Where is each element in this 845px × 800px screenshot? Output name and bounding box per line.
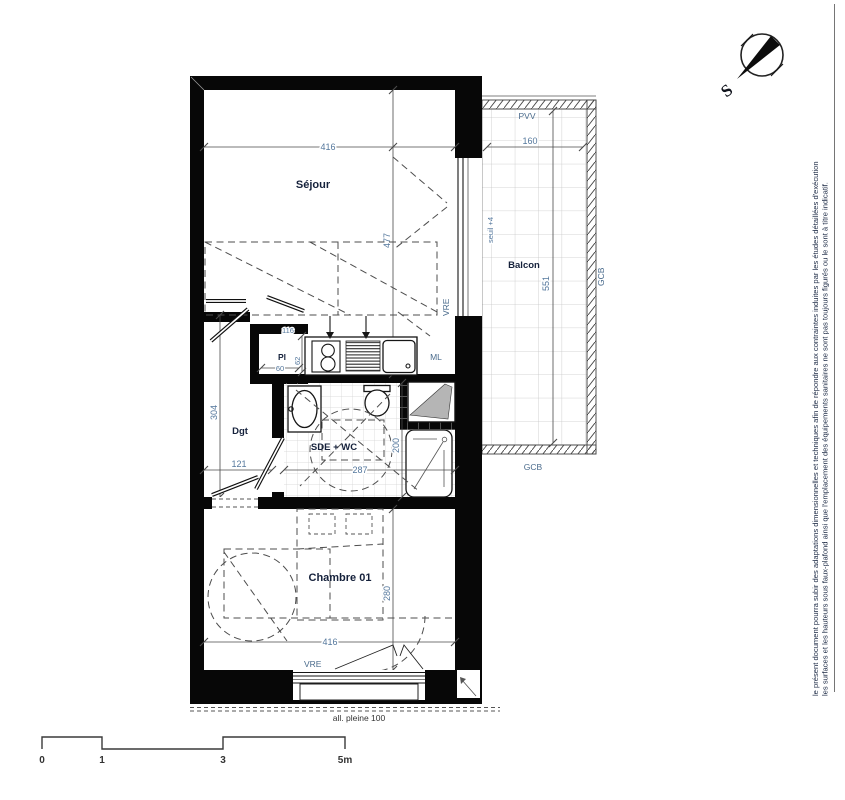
dim-pl-width: 60 (276, 364, 284, 373)
label-gcb-bottom: GCB (524, 462, 543, 472)
disclaimer-block: le présent document pourra subir des ada… (811, 4, 835, 696)
turning-circle-dashed (208, 553, 296, 641)
wardrobe-dashed (224, 549, 455, 641)
balcony-rail-right (587, 100, 596, 454)
disclaimer-line-2: les surfaces et les hauteurs sous faux-p… (821, 182, 830, 696)
scale-label-5m: 5m (338, 755, 353, 766)
kitchen-sink (383, 341, 415, 373)
window-sill-box (300, 684, 418, 700)
dim-sejour-width: 416 (320, 142, 335, 152)
vent-arrows (326, 316, 370, 339)
room-label-sde-wc: SDE + WC (311, 442, 357, 453)
corner-notch-arrow (457, 670, 480, 698)
duct-shaft (408, 382, 455, 422)
compass-tick-se (771, 64, 783, 76)
label-vre-sejour: VRE (441, 298, 451, 316)
label-allege: all. pleine 100 (333, 713, 386, 723)
wall-east-lower (455, 316, 482, 704)
bed-dashed (297, 509, 383, 620)
disclaimer-line-1: le présent document pourra subir des ada… (811, 161, 820, 696)
dim-sde-width: 287 (352, 465, 367, 475)
room-label-dgt: Dgt (232, 426, 249, 437)
label-vre-chambre: VRE (304, 659, 322, 669)
dim-shower-depth: 200 (391, 438, 401, 453)
room-sejour: Séjour 416 477 VRE (200, 86, 482, 378)
label-gcb-right: GCB (596, 267, 606, 286)
balcony-rail-bottom (482, 445, 596, 454)
label-seuil: seuil +4 (486, 217, 495, 243)
compass-tick-nw (741, 34, 753, 46)
room-label-chambre: Chambre 01 (309, 572, 372, 584)
drainboard (346, 341, 380, 371)
dim-dgt-depth: 304 (209, 405, 219, 420)
dim-balcony-width: 160 (522, 136, 537, 146)
balcony: 160 551 PVV seuil +4 Balcon GCB GCB (482, 96, 606, 472)
wall-north (190, 76, 482, 90)
balcony-rail-top (482, 100, 596, 109)
compass-south-label: S (717, 80, 736, 101)
scale-label-0: 0 (39, 755, 45, 766)
floor-plan-page: le présent document pourra subir des ada… (0, 0, 845, 800)
dim-pl-depth: 62 (293, 357, 302, 365)
scale-label-3: 3 (220, 755, 226, 766)
balcony-door-swing-dashed (393, 157, 447, 250)
wall-west (190, 76, 204, 704)
scale-bar: 0 1 3 5m (39, 737, 352, 766)
dim-dgt-width: 121 (231, 459, 246, 469)
dim-pl-top: 116 (282, 326, 294, 335)
room-sde-wc: SDE + WC 287 200 (280, 379, 459, 501)
dim-balcony-depth: 551 (541, 276, 551, 291)
room-label-pl: Pl (278, 352, 286, 362)
dim-sejour-depth: 477 (382, 233, 392, 248)
kitchen: ML (305, 316, 442, 375)
room-label-balcon: Balcon (508, 260, 540, 271)
window-swing-dashed (369, 616, 425, 672)
dim-chambre-width: 416 (322, 637, 337, 647)
window-vre-chambre: VRE (293, 645, 425, 700)
window-vre-sejour: VRE (441, 158, 482, 316)
floor-plan-svg: le présent document pourra subir des ada… (0, 0, 845, 800)
scale-label-1: 1 (99, 755, 105, 766)
shower-tray (406, 430, 452, 497)
label-pvv-rail: PVV (518, 111, 535, 121)
wall-east-upper (455, 76, 482, 158)
scale-bar-line (42, 737, 345, 749)
wc-bowl (365, 390, 389, 416)
balcony-floor-tiles (482, 109, 587, 445)
wall-sde-west-upper (272, 374, 284, 438)
dim-chambre-depth: 280 (382, 586, 392, 601)
north-arrow: S (717, 34, 783, 101)
washbasin-bowl (292, 391, 317, 428)
label-ml-washing-machine: ML (430, 352, 442, 362)
room-label-sejour: Séjour (296, 179, 331, 191)
